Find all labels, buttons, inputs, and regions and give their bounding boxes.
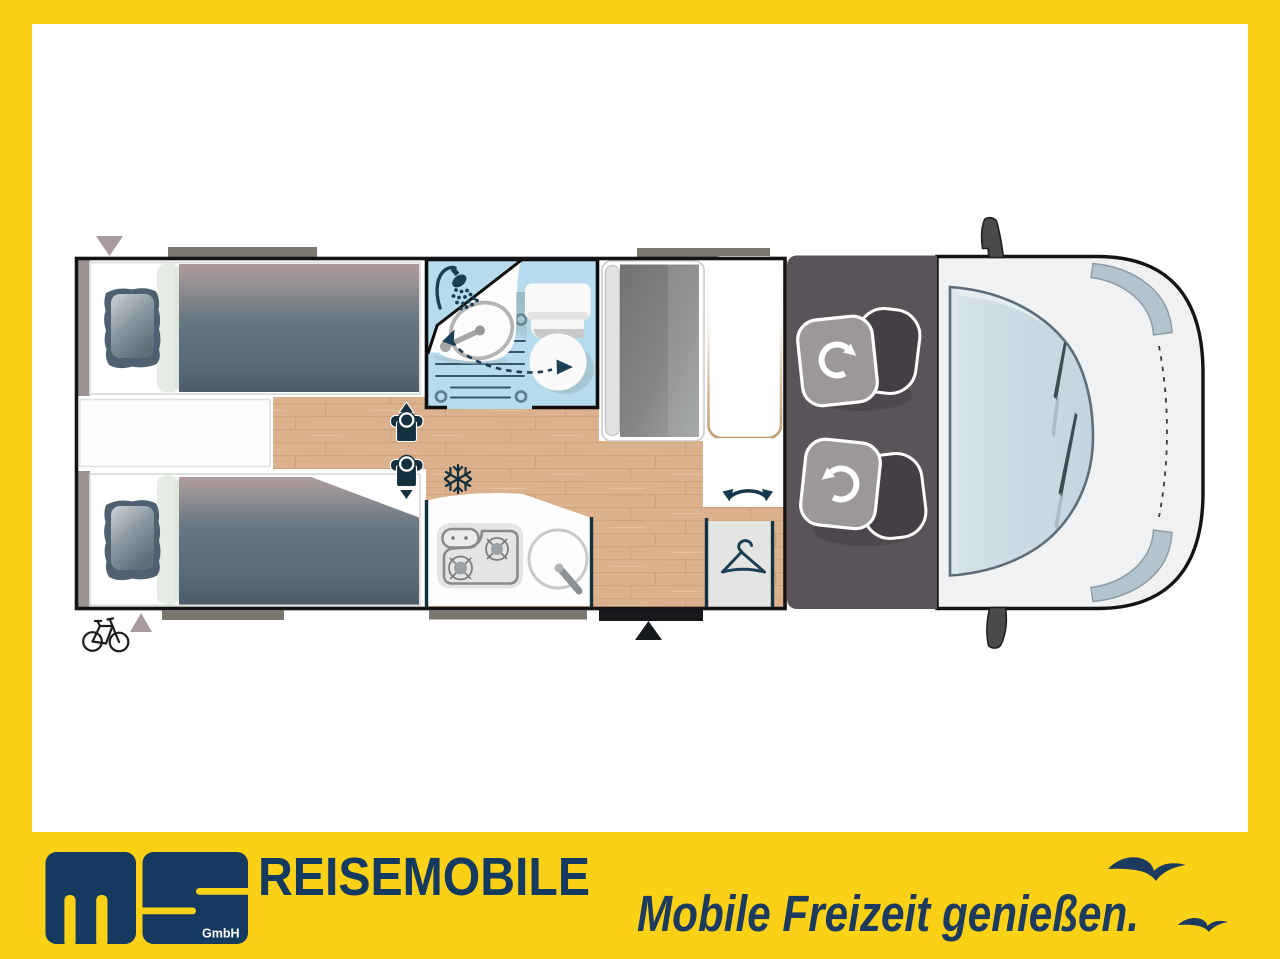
svg-text:REISEMOBILE: REISEMOBILE <box>258 847 590 907</box>
svg-text:Mobile Freizeit genießen.: Mobile Freizeit genießen. <box>637 885 1139 942</box>
svg-text:GmbH: GmbH <box>202 927 240 941</box>
